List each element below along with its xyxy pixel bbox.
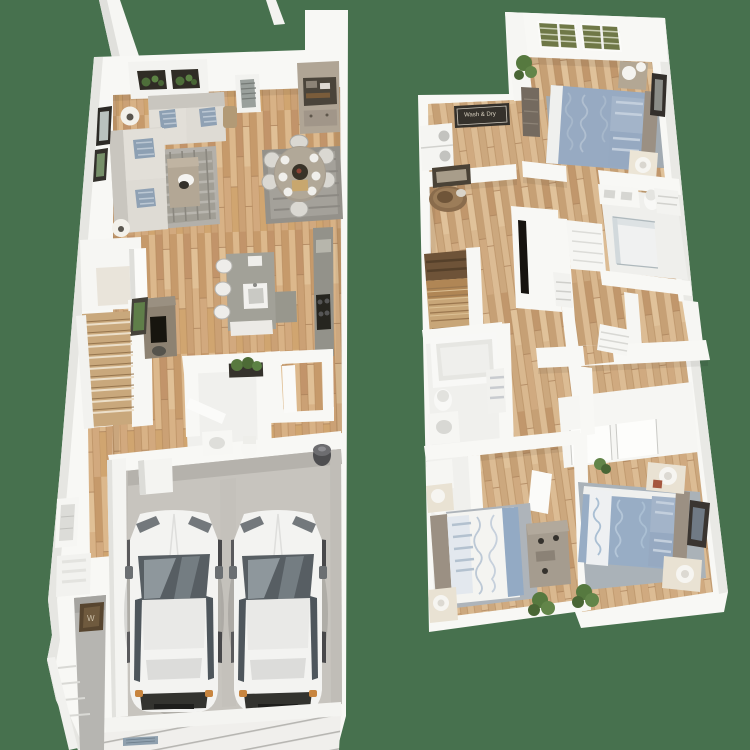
svg-text:W: W [87,614,95,623]
svg-text:Wash & Dry: Wash & Dry [464,111,496,118]
